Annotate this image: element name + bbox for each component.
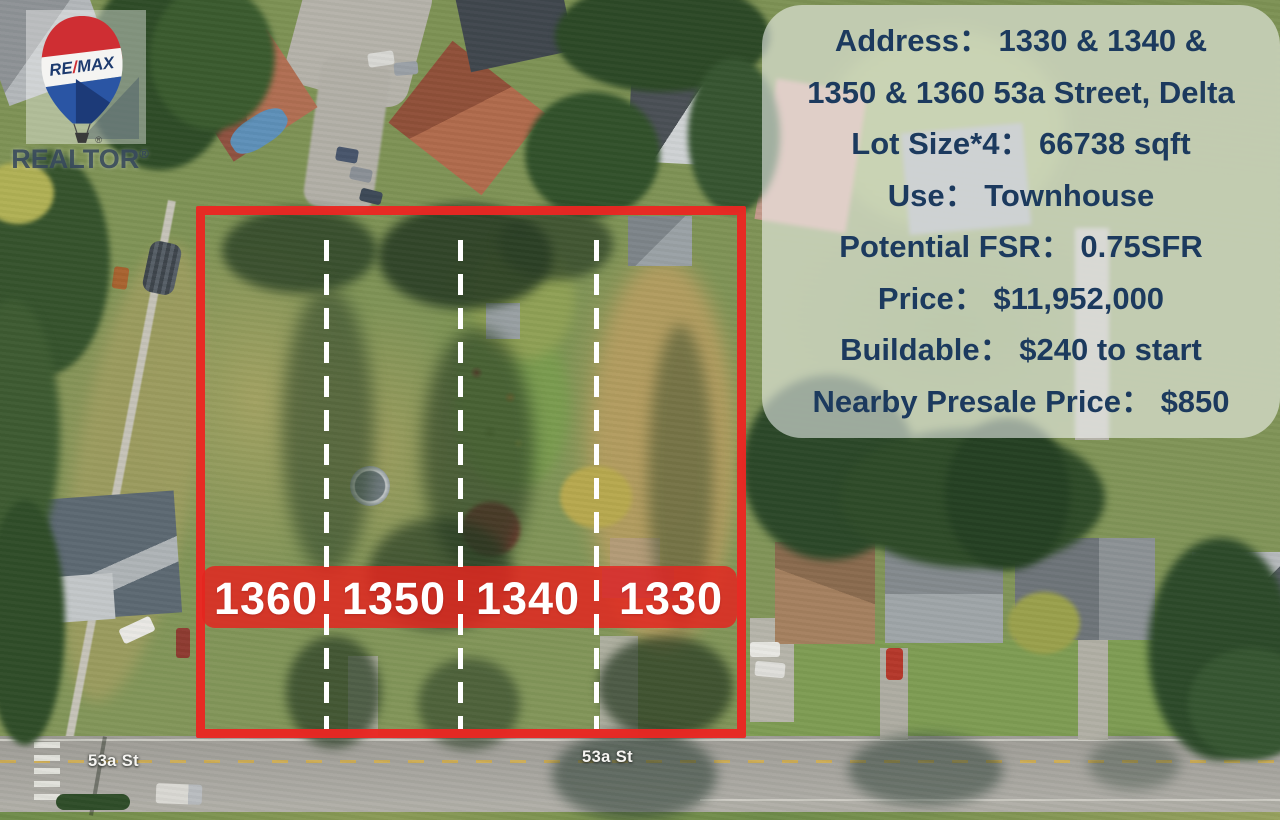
tree-canopy <box>525 92 660 217</box>
info-line-address-1: Address： 1330 & 1340 & <box>762 15 1280 67</box>
car <box>754 661 785 679</box>
listing-info-panel: Address： 1330 & 1340 & 1350 & 1360 53a S… <box>762 5 1280 438</box>
truck <box>156 783 203 805</box>
realtor-wordmark: REALTOR® <box>4 144 156 175</box>
crosswalk <box>34 742 60 802</box>
lot-number-1360: 1360 <box>214 573 318 625</box>
listing-graphic-root: 1360 1350 1340 1330 53a St 53a St RE/MAX… <box>0 0 1280 820</box>
tree-shadow <box>552 730 717 820</box>
info-line-price: Price： $11,952,000 <box>762 273 1280 325</box>
realtor-registered-mark: ® <box>139 146 149 161</box>
car <box>886 648 903 680</box>
info-line-lot-size: Lot Size*4： 66738 sqft <box>762 118 1280 170</box>
info-line-use: Use： Townhouse <box>762 170 1280 222</box>
car <box>176 628 190 658</box>
remax-realtor-badge: RE/MAX ® REALTOR® <box>4 6 156 178</box>
car <box>393 61 418 76</box>
car <box>750 642 780 657</box>
info-line-fsr: Potential FSR： 0.75SFR <box>762 221 1280 273</box>
realtor-text: REALTOR <box>11 144 139 174</box>
lot-divider-dashed-line <box>458 240 463 729</box>
info-line-presale-price: Nearby Presale Price： $850 <box>762 376 1280 428</box>
lot-number-1350: 1350 <box>342 573 446 625</box>
tree-canopy <box>1008 592 1080 654</box>
lot-divider-dashed-line <box>324 240 329 729</box>
tree-shadow <box>848 734 1003 806</box>
info-line-buildable: Buildable： $240 to start <box>762 324 1280 376</box>
street-label-53a-st-west: 53a St <box>88 752 139 771</box>
remax-balloon-logo: RE/MAX ® <box>30 12 134 148</box>
tree-shadow <box>1088 738 1180 790</box>
info-line-address-2: 1350 & 1360 53a Street, Delta <box>762 67 1280 119</box>
hedge <box>56 794 130 810</box>
tree-canopy <box>945 418 1070 570</box>
balloon-text-re: RE <box>48 58 74 80</box>
lot-divider-dashed-line <box>594 240 599 729</box>
lot-boundary-rectangle <box>196 206 746 738</box>
balloon-basket <box>75 133 89 143</box>
lot-number-1330: 1330 <box>619 573 723 625</box>
lot-number-1340: 1340 <box>476 573 580 625</box>
street-label-53a-st-east: 53a St <box>582 748 633 767</box>
bin <box>112 266 130 290</box>
